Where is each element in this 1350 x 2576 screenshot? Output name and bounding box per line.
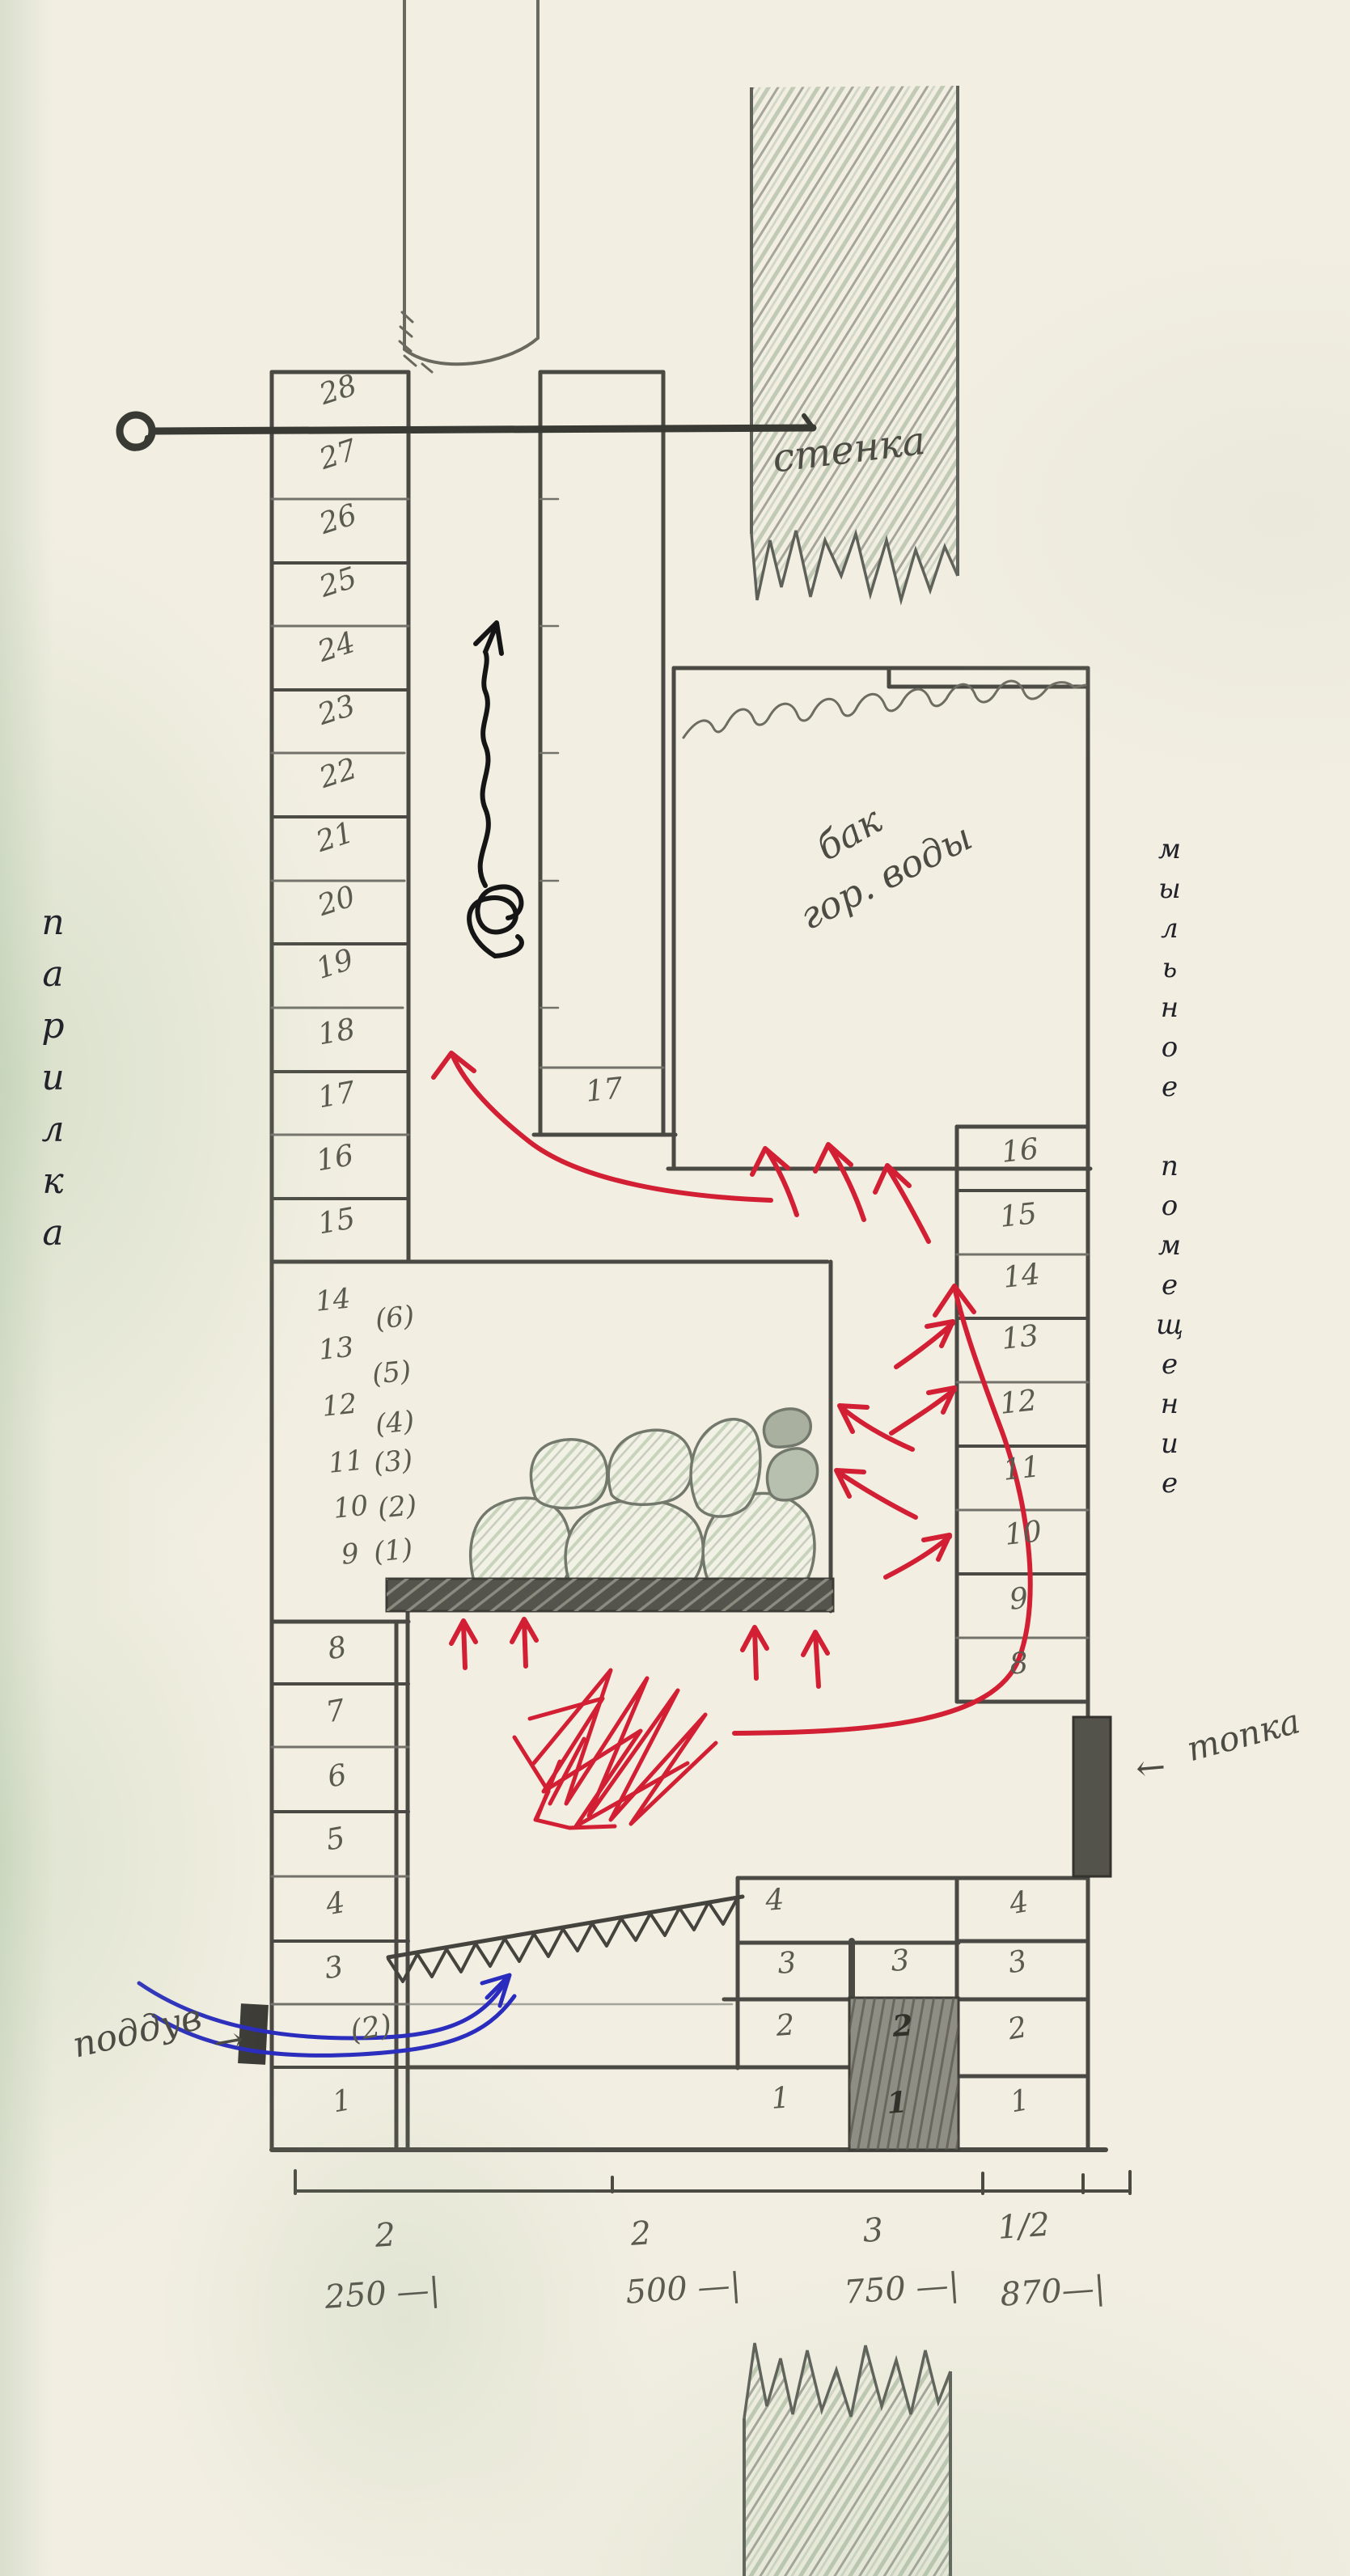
course-number: 2 xyxy=(775,2008,796,2042)
course-number: 14 xyxy=(1001,1258,1042,1295)
label-steam-room: парилка xyxy=(32,902,74,1264)
scale-dimension: 870—| xyxy=(999,2269,1107,2314)
stove-section-sketch: парилка мыльное помещение стенка бак гор… xyxy=(0,0,1350,2576)
course-number: 3 xyxy=(777,1946,798,1980)
course-number: 18 xyxy=(315,1013,358,1051)
sketch-canvas xyxy=(0,0,1350,2576)
course-number-alt: (1) xyxy=(372,1533,414,1569)
course-number: 2 xyxy=(891,2008,914,2044)
steel-plate xyxy=(387,1579,833,1611)
course-number-alt: (2) xyxy=(376,1489,418,1525)
dimension-scale xyxy=(295,2171,1130,2193)
course-number: 10 xyxy=(332,1489,370,1525)
damper-rod xyxy=(120,415,813,449)
course-number: 3 xyxy=(890,1944,911,1977)
course-number: 17 xyxy=(584,1072,624,1109)
course-number: 4 xyxy=(764,1883,785,1917)
label-washing-room: мыльное помещение xyxy=(1153,833,1186,1507)
course-number: 11 xyxy=(327,1444,365,1479)
course-number: 16 xyxy=(1000,1132,1040,1170)
course-number: 12 xyxy=(320,1387,358,1423)
course-number: 12 xyxy=(998,1384,1039,1421)
course-number-alt: (6) xyxy=(374,1300,416,1336)
course-number: 16 xyxy=(314,1139,356,1178)
fire-grate xyxy=(388,1897,743,1982)
smoke-squiggle-arrow xyxy=(469,623,522,956)
course-number: 15 xyxy=(315,1202,358,1241)
scale-brick-count: 2 xyxy=(374,2216,397,2255)
course-number: 10 xyxy=(1003,1515,1043,1552)
course-number: 1 xyxy=(886,2085,908,2121)
course-number: 9 xyxy=(1008,1582,1030,1617)
chimney-pipe xyxy=(400,0,538,372)
stones xyxy=(471,1409,818,1602)
course-number-alt: (4) xyxy=(374,1405,416,1441)
scale-brick-count: 2 xyxy=(629,2214,653,2253)
course-number-alt: (3) xyxy=(372,1444,414,1480)
wall-bottom xyxy=(744,2343,950,2576)
firebox-arrow-icon: ← xyxy=(1134,1746,1167,1790)
course-number: 14 xyxy=(314,1282,352,1318)
brick-course-lines xyxy=(272,499,1088,2067)
course-number: 9 xyxy=(340,1538,361,1571)
course-number: 15 xyxy=(998,1197,1039,1234)
wall-top xyxy=(751,86,958,600)
course-number: 8 xyxy=(1008,1647,1030,1681)
course-number: 1 xyxy=(770,2081,791,2115)
masonry-walls xyxy=(272,372,1106,2150)
course-number: 13 xyxy=(1000,1319,1040,1356)
course-number: 17 xyxy=(315,1076,358,1115)
course-number-alt: (5) xyxy=(370,1355,413,1391)
course-number: (2) xyxy=(348,2008,394,2048)
course-number: 13 xyxy=(317,1330,355,1366)
course-number: 11 xyxy=(1001,1450,1042,1487)
scale-brick-count: 3 xyxy=(861,2211,885,2250)
tank-water-line xyxy=(683,681,1086,738)
scale-brick-count: 1/2 xyxy=(997,2206,1051,2247)
firebox-door xyxy=(1073,1717,1111,1876)
